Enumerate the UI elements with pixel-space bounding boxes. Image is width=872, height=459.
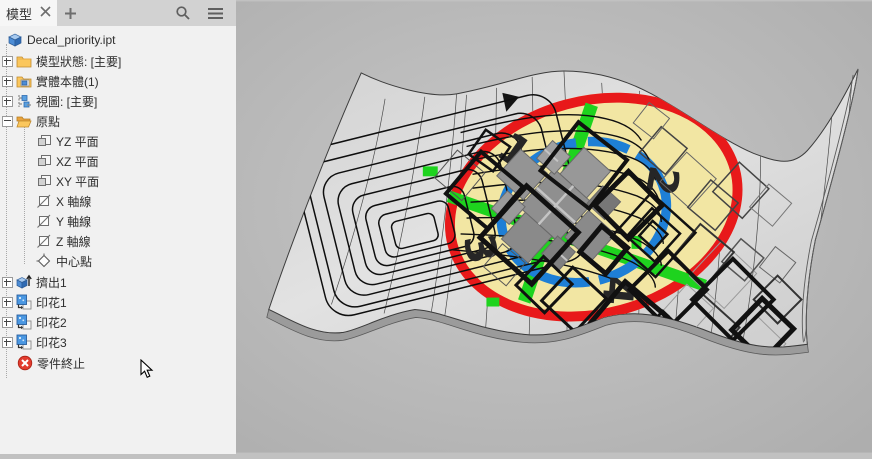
tree-item-label: XY 平面 [56,173,99,190]
tree-item-origin-folder[interactable]: 原點 [2,111,60,131]
decal-icon [16,334,32,350]
hamburger-menu-icon [207,7,224,20]
tree-item-label: 原點 [36,113,60,130]
tree-item-label: Y 軸線 [56,213,91,230]
open-folder-icon [16,113,32,129]
search-button[interactable] [170,2,196,24]
model-browser-tree: Decal_priority.ipt 模型狀態: [主要] 實體本體(1) [0,26,236,454]
expand-plus-icon[interactable] [2,277,13,288]
extrude-icon [16,274,32,290]
cursor-arrow-icon [140,359,154,379]
plane-icon [36,153,52,169]
tree-item-label: 視圖: [主要] [36,93,97,110]
new-tab-button[interactable] [57,2,83,24]
browser-tab-bar: 模型 [0,0,236,26]
plane-icon [36,133,52,149]
tree-item-xz-plane[interactable]: XZ 平面 [33,151,99,171]
expand-plus-icon[interactable] [2,297,13,308]
tree-item-label: Z 軸線 [56,233,91,250]
tree-item-view-rep[interactable]: 視圖: [主要] [2,91,97,111]
tree-item-end-of-part[interactable]: 零件終止 [14,353,85,373]
solid-folder-icon [16,73,32,89]
center-point-icon [36,253,52,269]
expand-plus-icon[interactable] [2,56,13,67]
plus-icon [64,7,77,20]
tree-item-label: XZ 平面 [56,153,99,170]
view-rep-icon [16,93,32,109]
tree-item-label: X 軸線 [56,193,91,210]
axis-icon [36,233,52,249]
tree-item-label: 零件終止 [37,355,85,372]
tree-item-label: 實體本體(1) [36,73,99,90]
tree-item-label: YZ 平面 [56,133,99,150]
tree-item-z-axis[interactable]: Z 軸線 [33,231,91,251]
panel-menu-button[interactable] [202,2,228,24]
tree-item-xy-plane[interactable]: XY 平面 [33,171,99,191]
expand-plus-icon[interactable] [2,337,13,348]
tree-item-label: 印花1 [36,294,67,311]
tree-item-decal-3[interactable]: 印花3 [2,332,67,352]
tree-item-label: 擠出1 [36,274,67,291]
tree-guide-line [24,124,25,264]
axis-icon [36,193,52,209]
expand-plus-icon[interactable] [2,76,13,87]
tree-item-label: 印花3 [36,334,67,351]
search-icon [175,5,191,21]
tree-item-yz-plane[interactable]: YZ 平面 [33,131,99,151]
end-of-part-icon [17,355,33,371]
tree-item-decal-1[interactable]: 印花1 [2,292,67,312]
plane-icon [36,173,52,189]
tree-item-label: 中心點 [56,253,92,270]
tree-item-solid-bodies[interactable]: 實體本體(1) [2,71,99,91]
tree-item-label: 印花2 [36,314,67,331]
tree-item-decal-2[interactable]: 印花2 [2,312,67,332]
axis-icon [36,213,52,229]
tree-item-part[interactable]: Decal_priority.ipt [4,30,115,50]
graphics-viewport[interactable]: 1 2 3 4 [236,0,872,454]
tree-item-x-axis[interactable]: X 軸線 [33,191,91,211]
tab-model[interactable]: 模型 [0,0,57,26]
model-3d-canvas: 1 2 3 4 [236,0,872,454]
tree-item-label: 模型狀態: [主要] [36,53,121,70]
folder-icon [16,53,32,69]
model-browser-panel: 模型 [0,0,236,454]
collapse-minus-icon[interactable] [2,116,13,127]
tree-item-label: Decal_priority.ipt [27,33,115,47]
decal-icon [16,294,32,310]
expand-plus-icon[interactable] [2,96,13,107]
tab-model-label: 模型 [6,4,32,23]
decal-icon [16,314,32,330]
close-tab-icon[interactable] [40,4,51,22]
tree-item-y-axis[interactable]: Y 軸線 [33,211,91,231]
part-document-icon [7,32,23,48]
expand-plus-icon[interactable] [2,317,13,328]
mouse-cursor [140,359,154,379]
tree-item-model-states[interactable]: 模型狀態: [主要] [2,51,121,71]
tree-item-extrusion[interactable]: 擠出1 [2,272,67,292]
tree-item-center-point[interactable]: 中心點 [33,251,92,271]
